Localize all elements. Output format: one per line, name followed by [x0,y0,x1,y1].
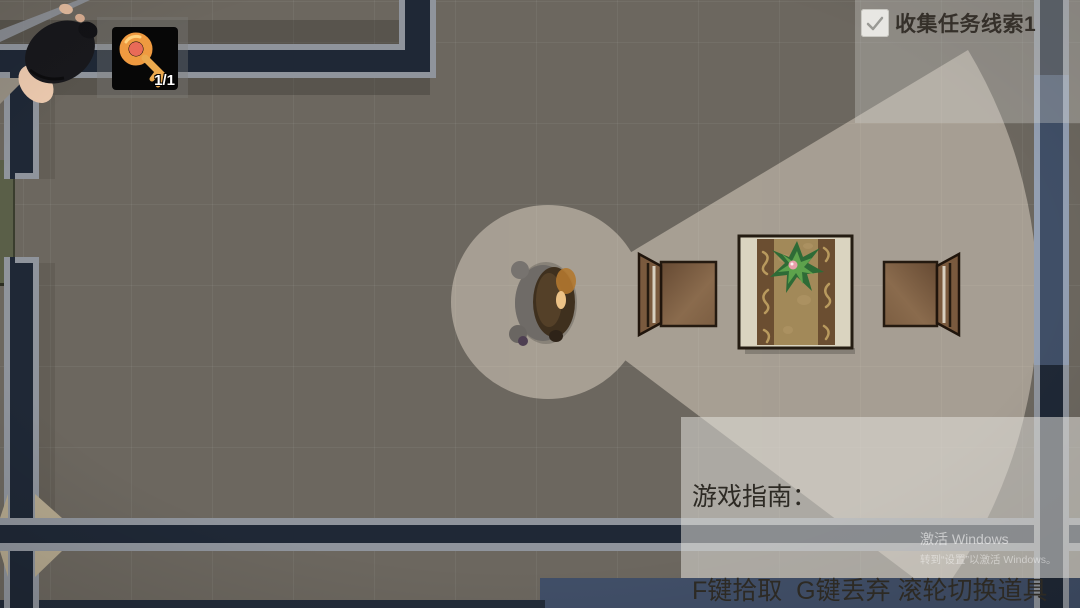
south-wall-strip [0,600,545,608]
key-count-label: 1/1 [154,72,175,89]
task-panel: 收集任务线索1 [855,0,1080,123]
table [739,236,855,354]
guide-title: 游戏指南： [692,482,1048,513]
guide-line-1: F键拾取 G键丢弃 滚轮切换道具 [692,576,1048,607]
player-character [509,261,577,346]
chair-right [884,254,959,335]
guide-panel: 游戏指南： F键拾取 G键丢弃 滚轮切换道具 B键装备武器 空格键拳击 右键开枪… [681,417,1080,578]
task-label: 收集任务线索1 [895,8,1036,38]
chair-left [639,254,716,335]
task-item: 收集任务线索1 [861,8,1036,38]
game-viewport[interactable]: 1/1 收集任务线索1 游戏指南： F键拾取 G键丢弃 滚轮切换道具 B键装备武… [0,0,1080,608]
task-checkbox[interactable] [861,9,889,37]
inventory-slot-key[interactable]: 1/1 [112,27,178,90]
checkmark-icon [861,9,889,37]
